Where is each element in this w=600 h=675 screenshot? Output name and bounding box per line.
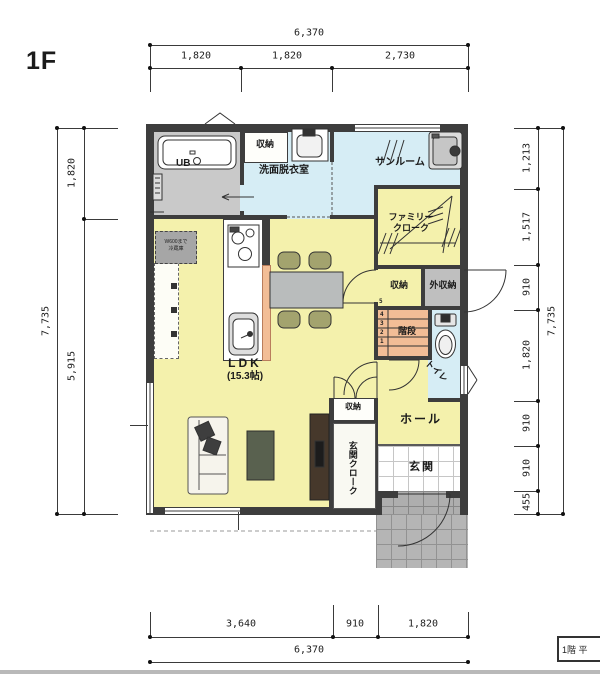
label-family-cloak-1: ファミリー (381, 212, 441, 223)
vent-triangle (205, 113, 235, 124)
dim-tick-dot (466, 66, 470, 70)
dim-bottom-total: 6,370 (294, 645, 324, 656)
dim-tick-dot (536, 489, 540, 493)
dim-tick-dot (536, 444, 540, 448)
dim-tick-dot (466, 660, 470, 664)
dim-left-seg-line (84, 128, 85, 514)
dim-tick-dot (148, 635, 152, 639)
dim-bottom-seg-2: 910 (346, 619, 364, 630)
dim-ext (332, 68, 333, 92)
dim-left-seg-1: 1,820 (67, 158, 78, 188)
dim-right-seg-7: 455 (522, 493, 533, 511)
dim-tick-dot (376, 635, 380, 639)
dim-bottom-seg-1: 3,640 (226, 619, 256, 630)
dim-right-seg-3: 910 (522, 278, 533, 296)
label-storage-top: 収納 (247, 139, 283, 150)
dim-tick-dot (55, 512, 59, 516)
footer-bar (0, 670, 600, 674)
toilet-fixture (435, 314, 456, 358)
dim-tick-dot (55, 126, 59, 130)
dim-top-total-line (150, 45, 468, 46)
dim-tick-dot (330, 66, 334, 70)
dim-ext (378, 605, 379, 637)
dim-right-total: 7,735 (547, 306, 558, 336)
label-ext-storage: 外収納 (423, 280, 463, 291)
plan-linework (0, 0, 600, 675)
dim-tick-dot (82, 512, 86, 516)
dim-tick-dot (82, 126, 86, 130)
dim-tick-dot (239, 66, 243, 70)
stair-num-4: 4 (380, 311, 384, 318)
door-arc-hall-b (389, 360, 419, 390)
door-arc-hall-a (344, 362, 377, 395)
stair-num-3: 3 (380, 320, 384, 327)
door-arc-storage-mid (343, 270, 376, 303)
dim-ext (468, 612, 469, 637)
label-washroom: 洗面脱衣室 (239, 165, 329, 177)
dim-ext (514, 401, 538, 402)
label-entrance: 玄関 (398, 461, 446, 474)
dim-right-seg-1: 1,213 (522, 143, 533, 173)
dim-top-seg-line (150, 68, 468, 69)
label-entrance-cloak: 玄関クローク (347, 430, 358, 506)
dim-left-total: 7,735 (41, 306, 52, 336)
dim-bottom-total-line (150, 662, 468, 663)
sofa (188, 417, 228, 494)
ub-slide-arrow (222, 194, 254, 200)
dim-tick-dot (536, 308, 540, 312)
label-storage-hall: 収納 (336, 402, 370, 412)
floor-plan-page: { "title": "1F", "stamp": "1階 平", "dims"… (0, 0, 600, 675)
dim-ext (57, 128, 118, 129)
dim-top-seg-3: 2,730 (385, 51, 415, 62)
dim-left-seg-2: 5,915 (67, 351, 78, 381)
dim-tick-dot (82, 217, 86, 221)
label-ub: UB (176, 158, 190, 170)
rug (247, 431, 274, 480)
dim-ext (84, 219, 118, 220)
dim-tick-dot (536, 512, 540, 516)
dim-right-seg-line (538, 128, 539, 514)
label-stairs: 階段 (391, 326, 423, 337)
dim-ext (514, 189, 538, 190)
label-ldk: LDK (210, 356, 280, 370)
dim-tick-dot (331, 635, 335, 639)
label-family-cloak: ファミリー クローク (381, 212, 441, 234)
dim-right-total-line (563, 128, 564, 514)
kitchen-sink (229, 313, 258, 355)
dining-table-set (270, 252, 343, 328)
dim-right-seg-2: 1,517 (522, 212, 533, 242)
stair-num-5: 5 (379, 298, 383, 305)
toilet-casement-marks (468, 366, 477, 394)
dim-bottom-seg-3: 1,820 (408, 619, 438, 630)
dim-ext (57, 514, 118, 515)
door-arc-ext-storage (464, 270, 506, 312)
stair-num-1: 1 (380, 338, 384, 345)
label-storage-mid: 収納 (379, 280, 419, 291)
dim-ext (514, 491, 538, 492)
dim-tick-dot (466, 43, 470, 47)
drawing-stamp-text: 1階 平 (559, 643, 588, 656)
shower-stool (150, 174, 164, 212)
stove (228, 225, 259, 267)
dim-tick-dot (561, 512, 565, 516)
dim-ext (333, 605, 334, 637)
dim-tick-dot (536, 187, 540, 191)
dim-tick-dot (466, 635, 470, 639)
dim-ext (150, 612, 151, 637)
dim-tick-dot (536, 126, 540, 130)
dim-tick-dot (148, 66, 152, 70)
washroom-sink (292, 129, 328, 161)
dim-ext (241, 68, 242, 92)
dim-right-seg-6: 910 (522, 459, 533, 477)
dim-ext (514, 310, 538, 311)
dim-tick-dot (148, 660, 152, 664)
dim-right-seg-5: 910 (522, 414, 533, 432)
dim-ext (514, 446, 538, 447)
dim-top-total: 6,370 (294, 28, 324, 39)
bathtub (158, 136, 236, 169)
dim-top-seg-1: 1,820 (181, 51, 211, 62)
dim-left-total-line (57, 128, 58, 514)
door-arcs-storage-hall (334, 377, 377, 398)
dim-right-seg-4: 1,820 (522, 340, 533, 370)
dim-bottom-seg-line (150, 637, 468, 638)
label-family-cloak-2: クローク (381, 223, 441, 234)
dim-top-seg-2: 1,820 (272, 51, 302, 62)
tv-board (310, 414, 329, 500)
label-ldk-size: (15.3帖) (210, 371, 280, 383)
stair-num-2: 2 (380, 329, 384, 336)
dim-tick-dot (148, 43, 152, 47)
label-sunroom: サンルーム (358, 157, 442, 169)
dim-tick-dot (536, 399, 540, 403)
dim-tick-dot (536, 263, 540, 267)
label-hall: ホール (386, 412, 456, 426)
drawing-stamp: 1階 平 (557, 636, 600, 662)
door-arc-entrance (398, 494, 450, 546)
dim-tick-dot (561, 126, 565, 130)
dim-ext (514, 265, 538, 266)
